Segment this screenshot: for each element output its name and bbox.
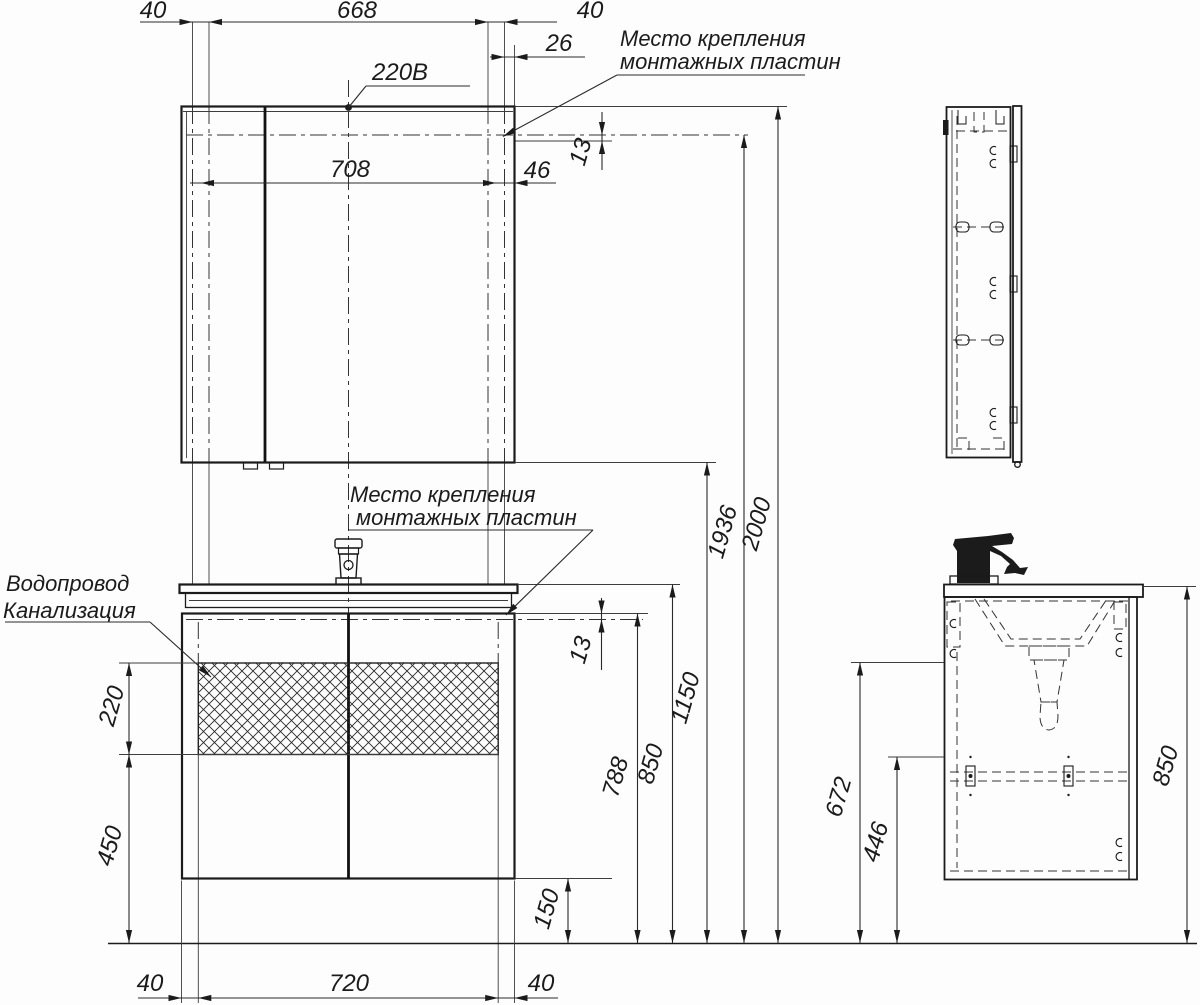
dim-220: 220	[93, 682, 130, 730]
dim-720: 720	[329, 970, 370, 997]
wall-bracket	[943, 120, 949, 135]
dim-1936: 1936	[702, 502, 743, 561]
dim-top-right-40: 40	[577, 0, 604, 24]
label-mirror-mounting-2: монтажных пластин	[620, 49, 841, 74]
dim-26: 26	[545, 30, 573, 57]
extension-lines	[119, 107, 1196, 1004]
dim-13-vanity: 13	[564, 633, 597, 667]
label-mirror-mounting-1: Место крепления	[620, 26, 806, 51]
label-vanity-mounting-2: монтажных пластин	[356, 505, 577, 530]
label-sewerage: Канализация	[3, 598, 136, 623]
technical-drawing-canvas: 40 668 40 26 708 46 13 220 450 13 150 78…	[0, 0, 1200, 1005]
dim-46: 46	[524, 157, 551, 184]
dim-base-right-40: 40	[528, 970, 555, 997]
dim-450: 450	[91, 822, 128, 869]
dim-top-left-40: 40	[140, 0, 167, 24]
dim-708: 708	[330, 156, 371, 183]
dim-150: 150	[528, 885, 565, 932]
installation-drawing: 40 668 40 26 708 46 13 220 450 13 150 78…	[0, 0, 1200, 1005]
service-window-hatch	[198, 663, 498, 755]
countertop-side	[944, 585, 1143, 598]
dim-base-left-40: 40	[137, 970, 164, 997]
side-view-vanity	[944, 533, 1143, 880]
dim-850-side: 850	[1147, 742, 1184, 789]
dim-446: 446	[857, 818, 894, 865]
side-hinge-marks	[950, 620, 1122, 861]
dim-788: 788	[597, 753, 634, 800]
dim-672: 672	[820, 774, 857, 820]
dim-2000: 2000	[736, 494, 777, 554]
label-vanity-mounting-1: Место крепления	[350, 482, 536, 507]
label-water-supply: Водопровод	[6, 571, 129, 596]
dim-13-mirror: 13	[564, 135, 597, 169]
label-power-supply: 220В	[371, 59, 428, 86]
callouts: 220В Место крепления монтажных пластин М…	[3, 26, 841, 677]
side-view-mirror-cabinet	[943, 106, 1022, 467]
dimension-lines: 40 668 40 26 708 46 13 220 450 13 150 78…	[91, 0, 1190, 1001]
dim-top-668: 668	[337, 0, 378, 24]
dim-1150: 1150	[666, 669, 706, 727]
